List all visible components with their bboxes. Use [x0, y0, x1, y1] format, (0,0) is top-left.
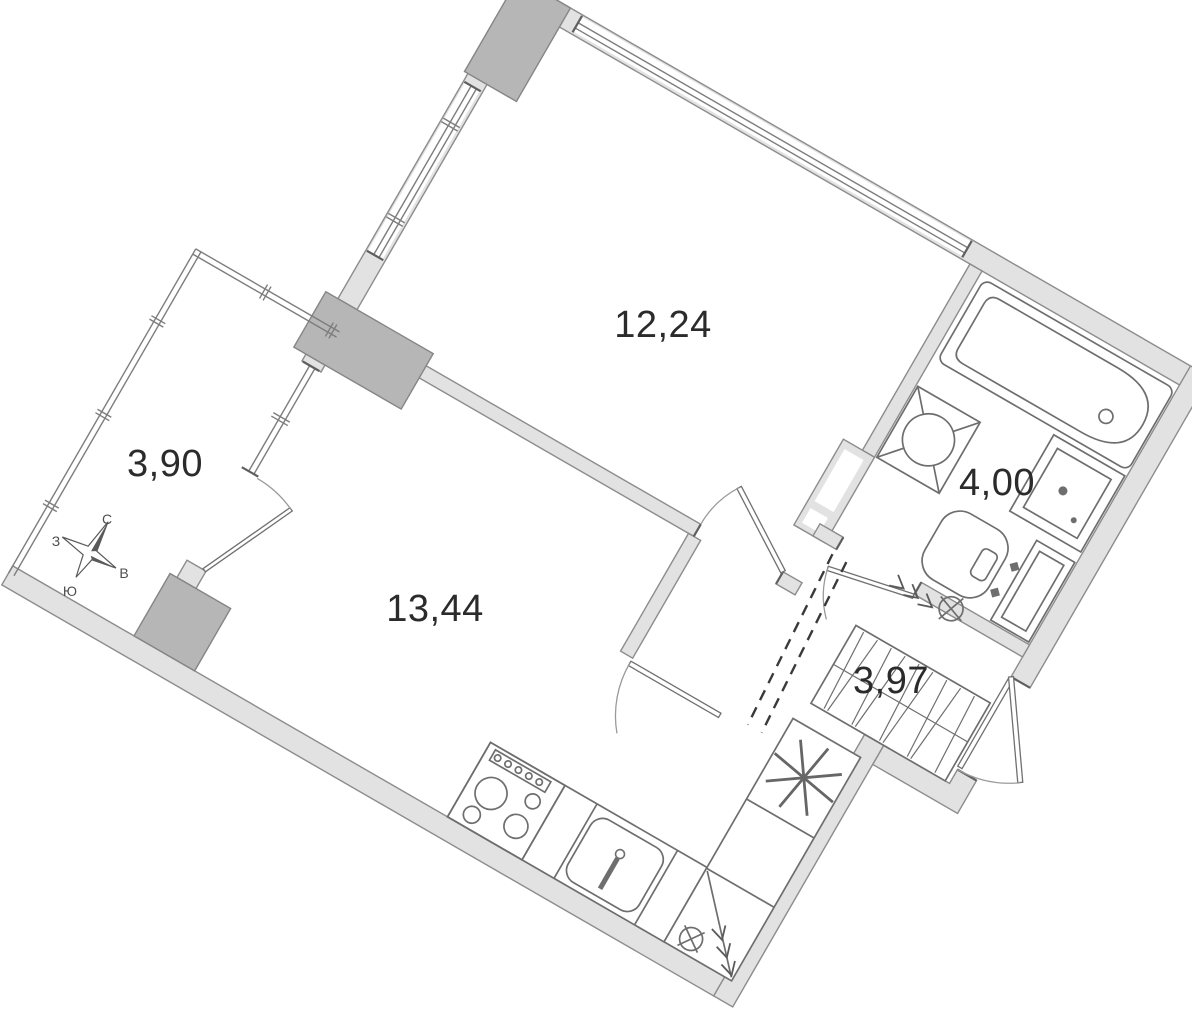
- floor-plan: [0, 0, 1192, 1016]
- window-north: [573, 16, 972, 257]
- room-labels: 12,24 13,44 3,90 4,00 3,97: [127, 304, 1035, 702]
- window-balcony-wall: [242, 361, 319, 476]
- piers: [129, 0, 617, 695]
- pier-balcony-top: [294, 292, 433, 409]
- label-bathroom-area: 4,00: [959, 462, 1035, 504]
- window-west: [367, 82, 481, 260]
- label-balcony-area: 3,90: [127, 443, 203, 485]
- door-balcony: [202, 477, 297, 594]
- compass-west-label: З: [52, 533, 60, 549]
- door-kitchen-living: [596, 661, 721, 773]
- compass-south-label: Ю: [63, 583, 77, 599]
- label-living-room-area: 12,24: [614, 304, 712, 346]
- floor-plan-page: 12,24 13,44 3,90 4,00 3,97 С З В Ю: [0, 0, 1192, 1016]
- label-hallway-area: 3,97: [853, 660, 929, 702]
- compass-north-label: С: [102, 511, 112, 527]
- door-living-room: [694, 478, 811, 584]
- compass-rose: С З В Ю: [48, 506, 134, 599]
- wall-vestibule-west: [621, 533, 701, 658]
- wall-south: [2, 566, 725, 996]
- wall-living-south-a: [416, 364, 701, 537]
- floor-plan-canvas: 12,24 13,44 3,90 4,00 3,97 С З В Ю: [0, 0, 1192, 1016]
- compass-east-label: В: [119, 565, 128, 581]
- label-kitchen-living-area: 13,44: [386, 588, 484, 630]
